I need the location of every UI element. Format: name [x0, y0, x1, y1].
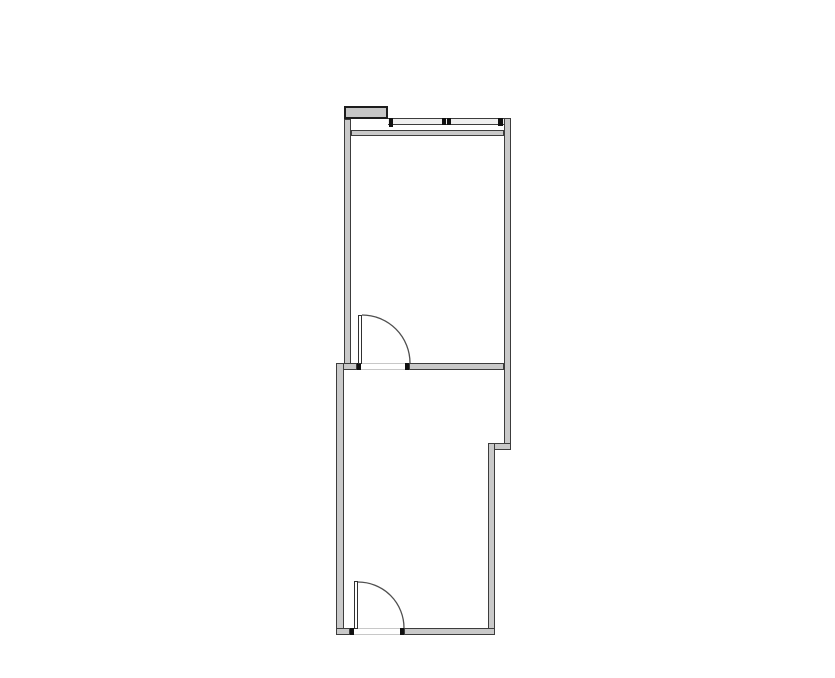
window-band-top	[388, 118, 504, 125]
door-jamb-bottom-right	[400, 628, 404, 635]
entry-tab-top-left	[344, 106, 388, 119]
door-arc-mid	[362, 315, 410, 363]
wall-divider-right	[409, 363, 504, 370]
floor-plan	[0, 0, 835, 678]
door-leaf-bottom	[354, 581, 358, 629]
door-jamb-mid-right	[405, 363, 409, 370]
door-leaf-mid	[358, 315, 362, 364]
window-post-right	[498, 118, 503, 126]
wall-left-lower	[336, 363, 344, 635]
wall-right-upper	[504, 118, 511, 450]
wall-top-inner-band	[351, 130, 504, 136]
door-threshold-mid	[361, 363, 405, 370]
wall-right-lower	[488, 443, 495, 635]
wall-left-upper	[344, 119, 351, 370]
window-mullion-a	[442, 118, 446, 125]
door-arc-bottom	[358, 582, 404, 628]
wall-bottom-right	[404, 628, 495, 635]
door-arc-layer	[0, 0, 835, 678]
window-post-left	[389, 118, 393, 127]
wall-bottom-left-stub	[336, 628, 350, 635]
window-mullion-b	[447, 118, 451, 125]
door-threshold-bottom	[354, 628, 400, 635]
